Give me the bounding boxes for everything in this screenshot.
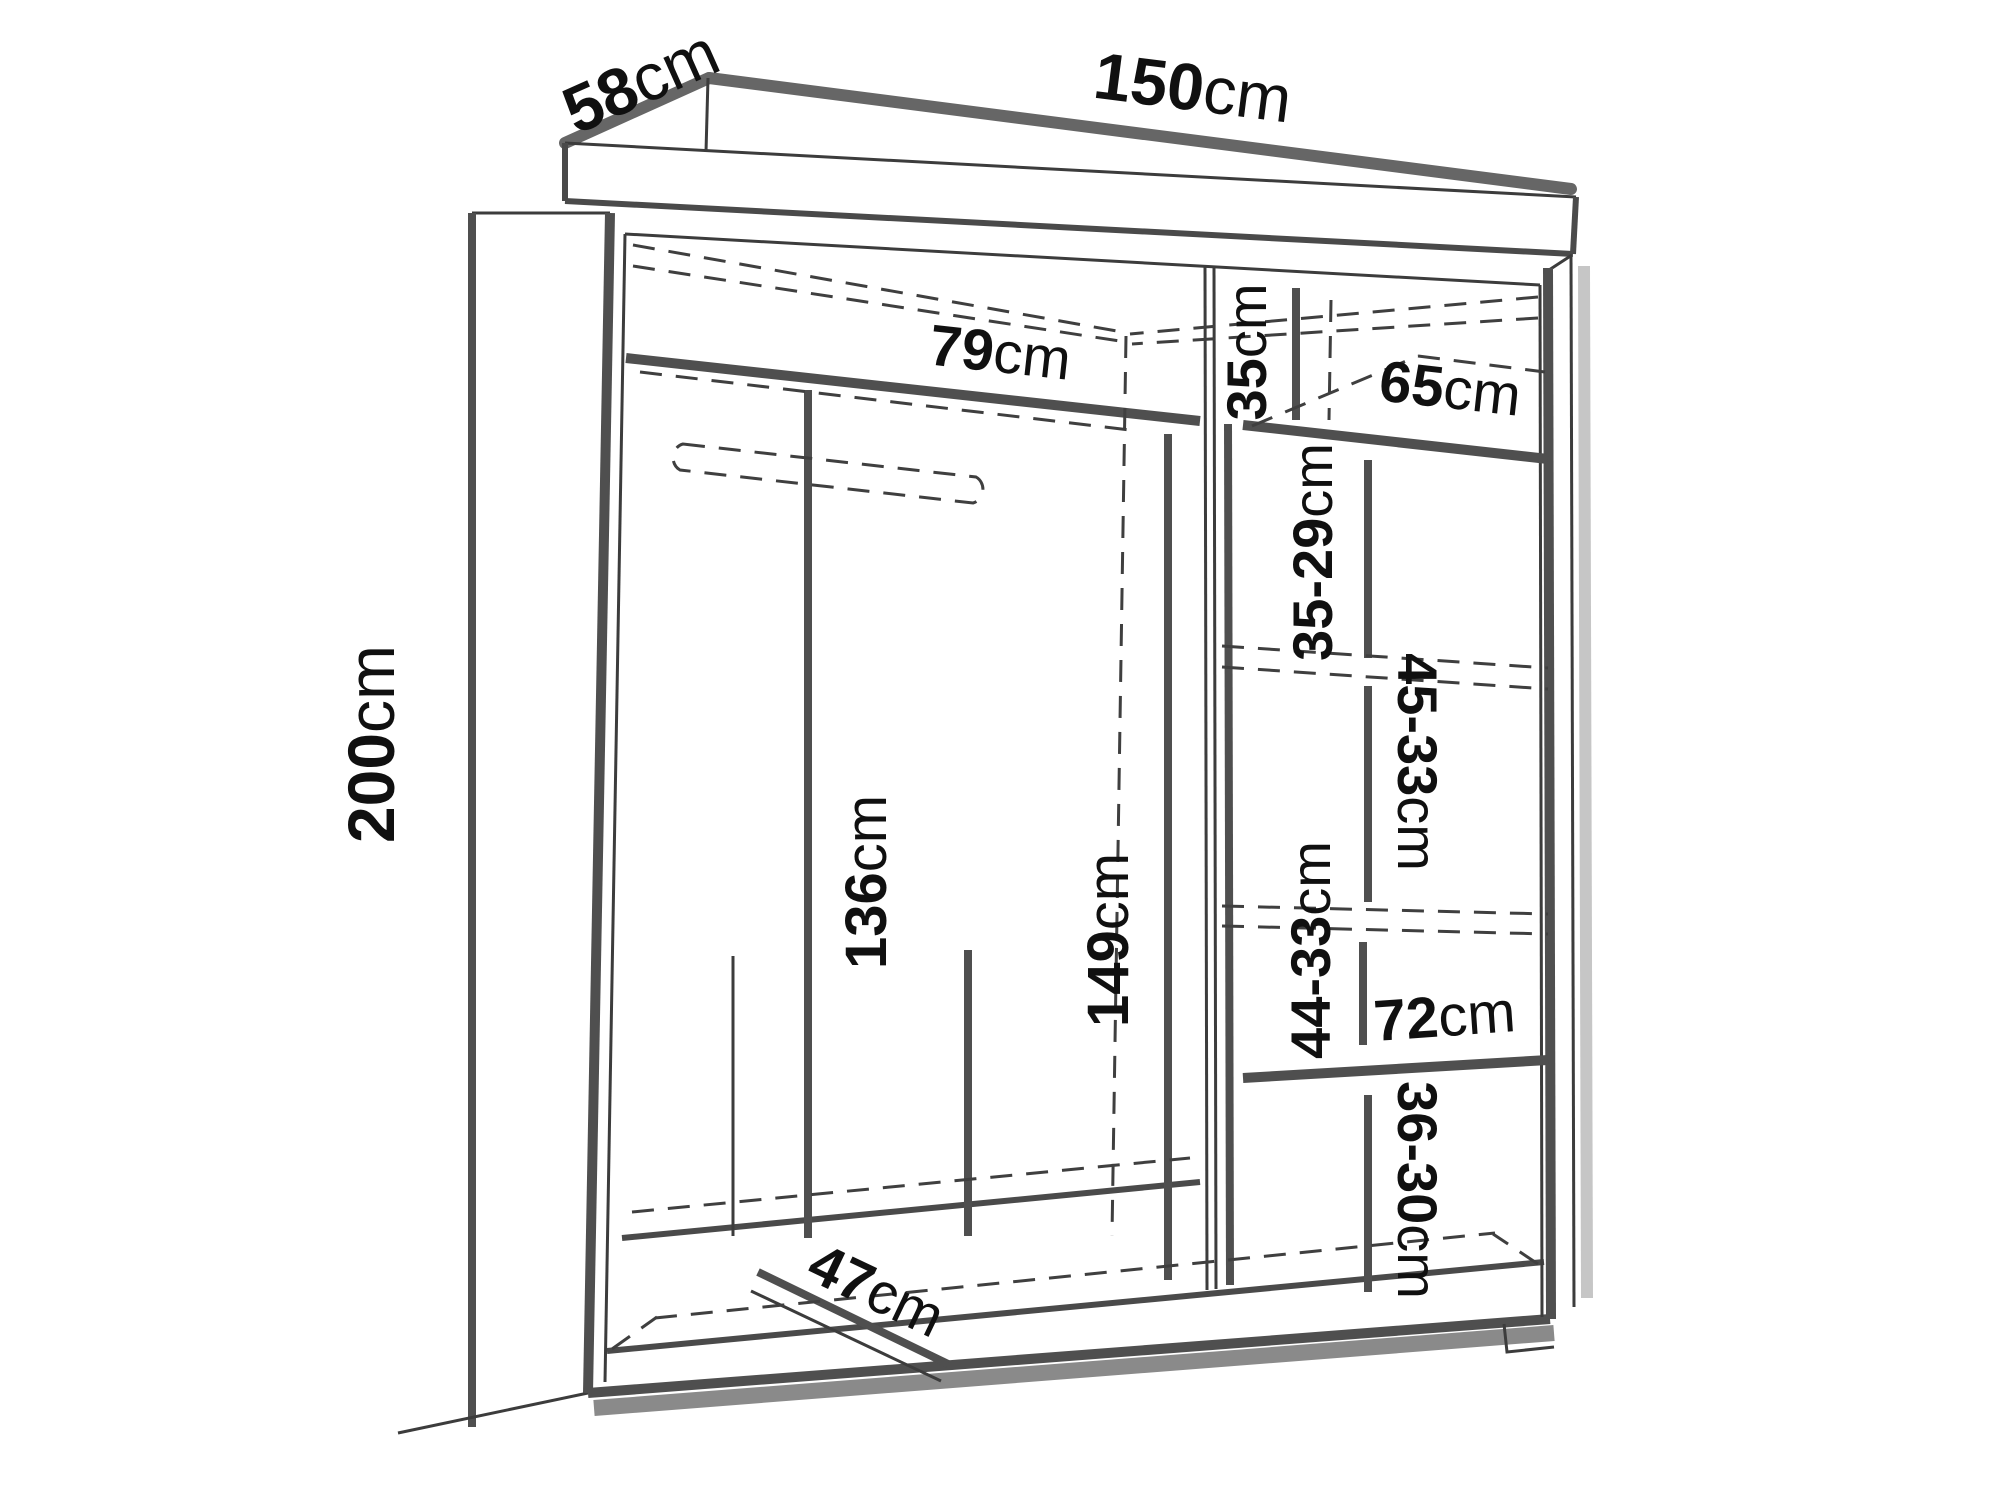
label-gap-top-unit: cm <box>1281 443 1344 518</box>
right-side-sliver-edge <box>1571 257 1574 1307</box>
front-right-edge <box>1548 268 1551 1319</box>
label-gap-bottom-value: 36-30 <box>1386 1081 1449 1224</box>
label-left-shelf-unit: cm <box>990 320 1074 393</box>
crown-to-cabinet-step <box>1549 255 1572 270</box>
label-hanging-value: 136 <box>834 872 899 969</box>
label-gap-upper-value: 45-33 <box>1386 653 1449 796</box>
label-width-value: 150 <box>1090 38 1209 125</box>
label-middle-149cm: 149cm <box>1076 853 1141 1027</box>
label-lower-shelf-unit: cm <box>1436 979 1518 1049</box>
label-width-unit: cm <box>1199 52 1296 137</box>
label-height-value: 200 <box>334 733 408 843</box>
label-middle-value: 149 <box>1076 930 1141 1027</box>
label-hanging-unit: cm <box>834 795 899 872</box>
label-hanging-136cm: 136cm <box>834 795 899 969</box>
label-gap-lower-unit: cm <box>1279 841 1342 916</box>
label-height-unit: cm <box>334 645 408 733</box>
label-top-right-unit: cm <box>1215 284 1278 359</box>
diagram-canvas: 58cm 150cm 200cm 79cm 35cm 65cm 35-29cm … <box>0 0 2000 1500</box>
label-top-right-value: 35 <box>1215 358 1278 420</box>
label-height-200cm: 200cm <box>334 645 408 843</box>
label-gap-bottom-unit: cm <box>1386 1224 1449 1299</box>
label-gap-36-30cm: 36-30cm <box>1386 1081 1449 1299</box>
label-left-shelf-value: 79 <box>926 313 997 385</box>
right-side-shadow <box>1584 266 1587 1298</box>
label-lower-shelf-value: 72 <box>1372 985 1441 1054</box>
wardrobe-dimension-diagram: 58cm 150cm 200cm 79cm 35cm 65cm 35-29cm … <box>0 0 2000 1500</box>
label-top-right-35cm: 35cm <box>1215 284 1278 421</box>
label-gap-lower-value: 44-33 <box>1279 916 1342 1059</box>
divider-front-edge-left <box>1205 266 1207 1290</box>
inner-right-edge <box>1540 285 1542 1317</box>
label-lower-shelf-72cm: 72cm <box>1372 979 1518 1054</box>
label-right-shelf-unit: cm <box>1440 356 1524 429</box>
label-gap-35-29cm: 35-29cm <box>1281 443 1344 661</box>
label-gap-44-33cm: 44-33cm <box>1279 841 1342 1059</box>
label-gap-top-value: 35-29 <box>1281 518 1344 661</box>
label-middle-unit: cm <box>1076 853 1141 930</box>
divider-dark-edge <box>1228 424 1230 1285</box>
label-gap-45-33cm: 45-33cm <box>1386 653 1449 871</box>
crown-right-edge <box>1573 197 1576 254</box>
label-right-shelf-value: 65 <box>1376 349 1447 421</box>
label-width-150cm: 150cm <box>1090 38 1296 137</box>
label-gap-upper-unit: cm <box>1386 796 1449 871</box>
